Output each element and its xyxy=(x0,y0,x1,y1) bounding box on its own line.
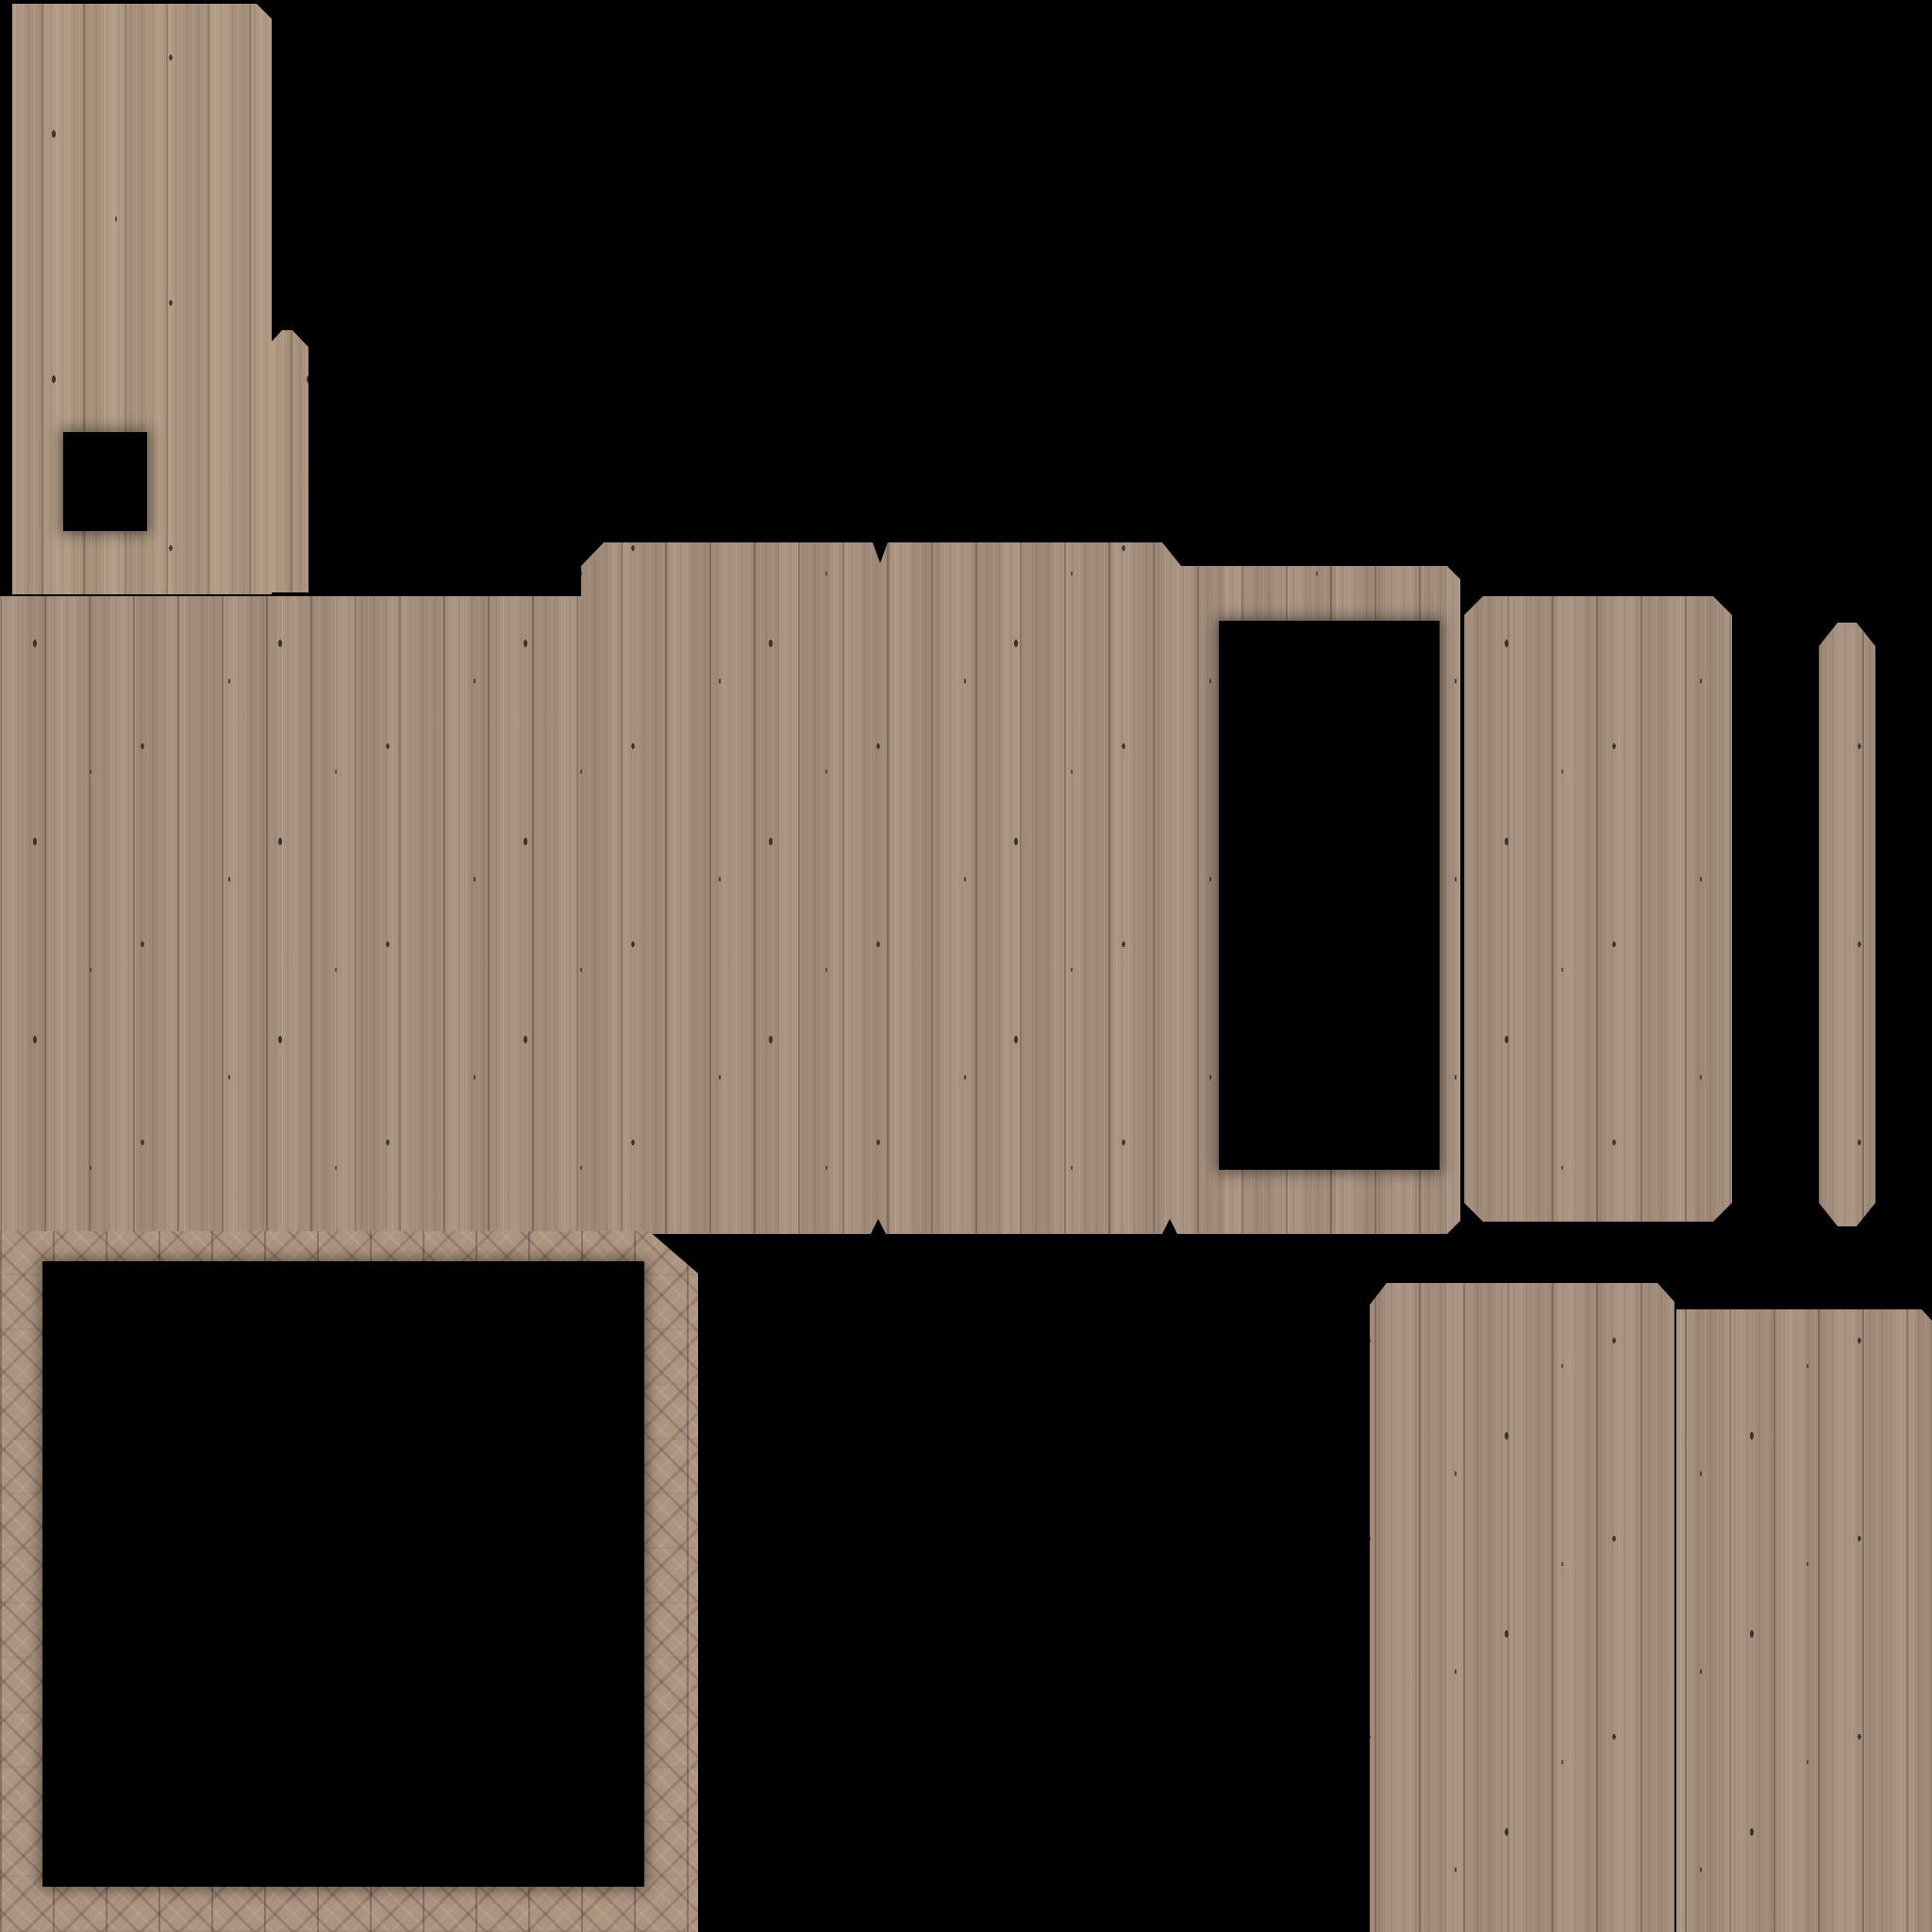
strip-top-left-cutout xyxy=(63,432,147,531)
main-band-cutout xyxy=(1219,621,1440,1170)
texture-atlas-canvas xyxy=(0,0,1932,1932)
parquet-frame-bottom-left-cutout xyxy=(42,1261,644,1887)
